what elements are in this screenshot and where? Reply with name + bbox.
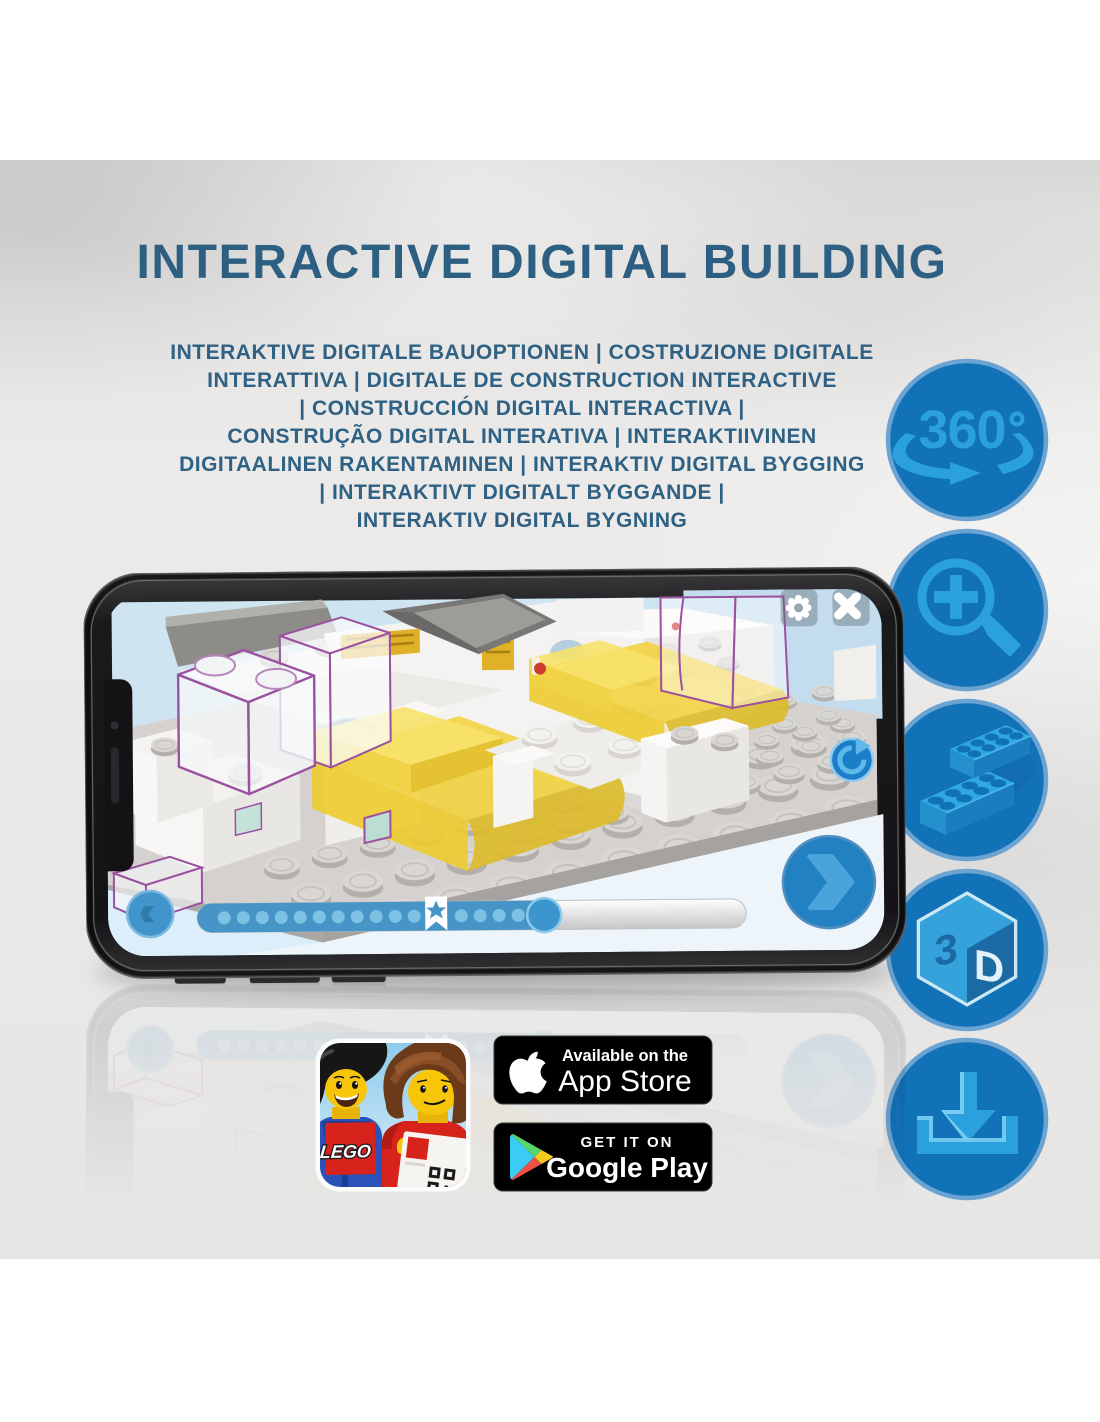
svg-text:Available on the: Available on the xyxy=(562,1047,688,1065)
svg-text:GET IT ON: GET IT ON xyxy=(581,1134,674,1151)
svg-text:App Store: App Store xyxy=(558,1065,691,1098)
svg-text:360: 360 xyxy=(918,400,1005,460)
svg-text:LEGO: LEGO xyxy=(319,1141,372,1162)
svg-text:D: D xyxy=(974,941,1004,994)
svg-text:Google Play: Google Play xyxy=(546,1152,708,1183)
svg-text:3: 3 xyxy=(934,924,957,975)
